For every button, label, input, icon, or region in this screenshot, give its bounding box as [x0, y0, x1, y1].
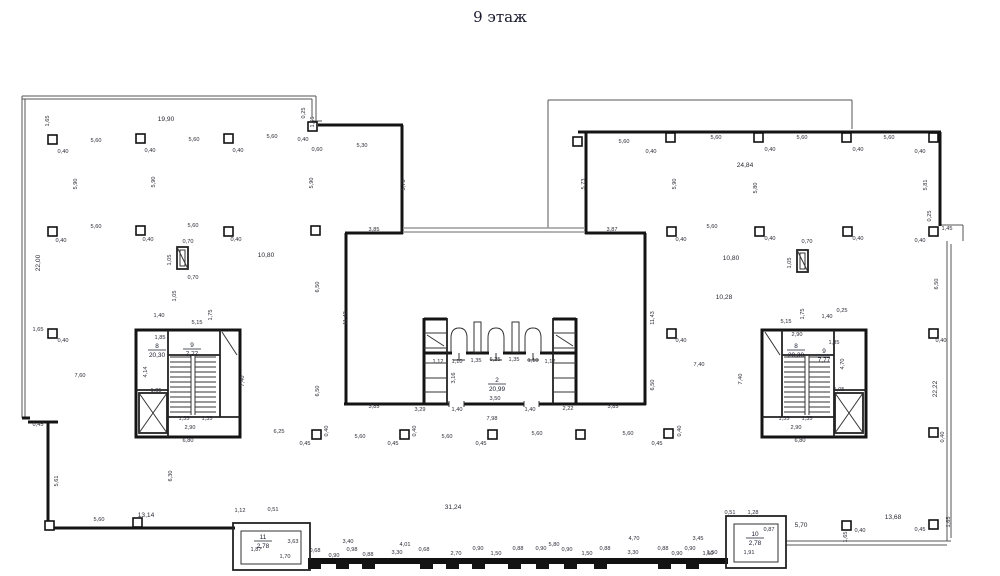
dimension-label: 0,40 [143, 237, 154, 243]
dimension-label: 6,50 [315, 386, 321, 397]
dimension-label: 2,70 [451, 551, 462, 557]
right-edge-wall [940, 225, 963, 541]
dimension-label: 0,98 [347, 547, 358, 553]
dimension-label: 1,65 [45, 116, 51, 127]
svg-text:9: 9 [822, 348, 826, 355]
dimension-label: 5,81 [923, 180, 929, 191]
dimension-label: 1,12 [545, 359, 556, 365]
dimension-label: 5,60 [188, 223, 199, 229]
dimension-label: 5,90 [73, 179, 79, 190]
dimension-label: 0,25 [301, 108, 307, 119]
svg-text:20,99: 20,99 [489, 386, 505, 393]
dimension-label: 1,65 [33, 327, 44, 333]
svg-text:7,77: 7,77 [818, 357, 831, 364]
room-label: 220,99 [488, 377, 506, 393]
dimension-label: 13,68 [885, 514, 902, 521]
dimension-label: 0,45 [476, 441, 487, 447]
dimension-label: 3,16 [451, 373, 457, 384]
dimension-label: 5,60 [94, 517, 105, 523]
dimension-label: 10,28 [716, 294, 733, 301]
dimension-label: 1,50 [491, 551, 502, 557]
dimension-label: 1,12 [433, 359, 444, 365]
dimension-label: 1,85 [155, 335, 166, 341]
dimension-label: 6,25 [274, 429, 285, 435]
dimension-label: 1,35 [471, 358, 482, 364]
shaft-divider [512, 322, 519, 352]
svg-text:7,77: 7,77 [186, 351, 199, 358]
dimension-label: 1,05 [834, 387, 845, 393]
dimension-label: 0,45 [652, 441, 663, 447]
dimension-label: 10,80 [258, 252, 275, 259]
dimension-label: 5,80 [549, 542, 560, 548]
dimension-label: 0,40 [853, 147, 864, 153]
svg-text:2: 2 [495, 377, 499, 384]
dimension-label: 6,50 [934, 279, 940, 290]
dimension-label: 0,40 [915, 149, 926, 155]
svg-text:20,30: 20,30 [149, 352, 165, 359]
right-wing-walls [578, 132, 941, 234]
dimension-label: 0,90 [473, 546, 484, 552]
right-wing-parapet [548, 100, 852, 228]
dimension-label: 0,25 [837, 308, 848, 314]
dimension-label: 0,68 [419, 547, 430, 553]
dimension-label: 13,14 [138, 512, 155, 519]
dimension-label: 1,12 [235, 508, 246, 514]
dimension-label: 0,40 [940, 432, 946, 443]
dimension-label: 1,85 [829, 340, 840, 346]
dimension-label: 0,40 [231, 237, 242, 243]
room-label: 97,77 [815, 348, 833, 364]
dimension-label: 5,60 [623, 431, 634, 437]
dimension-label: 1,65 [843, 532, 849, 543]
dimension-label: 1,35 [802, 416, 813, 422]
dimension-label: 6,25 [490, 357, 501, 363]
dimension-label: 0,40 [936, 338, 947, 344]
dimension-label: 3,30 [392, 550, 403, 556]
dimension-label: 2,90 [791, 425, 802, 431]
dimension-label: 1,05 [151, 388, 162, 394]
dimension-label: 1,45 [942, 226, 953, 232]
dimension-label: 7,40 [738, 374, 744, 385]
dimension-label: 0,45 [915, 527, 926, 533]
dimension-label: 5,15 [781, 319, 792, 325]
dimension-label: 0,40 [58, 338, 69, 344]
dimension-label: 0,90 [329, 553, 340, 559]
dimension-label: 1,46 [310, 117, 316, 128]
dimension-label: 3,50 [490, 396, 501, 402]
dimension-label: 0,70 [183, 239, 194, 245]
dimension-label: 4,70 [629, 536, 640, 542]
dimension-label: 0,25 [927, 211, 933, 222]
room-label: 102,78 [746, 531, 764, 547]
dimension-label: 1,05 [172, 291, 178, 302]
dimension-label: 22,22 [932, 380, 939, 397]
dimension-label: 24,84 [737, 162, 754, 169]
dimension-label: 0,40 [324, 426, 330, 437]
dimension-label: 0,45 [300, 441, 311, 447]
dimension-label: 10,80 [723, 255, 740, 262]
dimension-label: 0,40 [412, 426, 418, 437]
dimension-label: 0,40 [233, 148, 244, 154]
dimension-label: 0,68 [310, 548, 321, 554]
dimension-label: 5,90 [151, 177, 157, 188]
dimension-label: 4,14 [143, 367, 149, 378]
right-stairs [784, 355, 830, 415]
dimension-label: 0,60 [312, 147, 323, 153]
dimension-label: 0,40 [58, 149, 69, 155]
dimension-label: 2,90 [792, 332, 803, 338]
dimension-label: 5,90 [309, 178, 315, 189]
dimension-label: 5,30 [357, 143, 368, 149]
vent-shafts [177, 247, 808, 272]
dimension-label: 7,98 [487, 416, 498, 422]
dimension-label: 5,80 [753, 183, 759, 194]
dimension-label: 5,90 [672, 179, 678, 190]
svg-text:2,78: 2,78 [257, 543, 270, 550]
dimension-label: 0,40 [765, 147, 776, 153]
left-core-door [222, 332, 237, 355]
dimension-label: 1,75 [208, 310, 214, 321]
room-label: 112,78 [254, 534, 272, 550]
dimension-label: 0,40 [765, 236, 776, 242]
dimension-label: 5,60 [711, 135, 722, 141]
dimension-label: 7,40 [694, 362, 705, 368]
dimension-label: 1,40 [822, 314, 833, 320]
dimension-label: 3,87 [607, 227, 618, 233]
dimension-label: 1,05 [787, 258, 793, 269]
dimension-label: 1,35 [509, 357, 520, 363]
columns [45, 122, 938, 530]
svg-text:10: 10 [751, 531, 759, 538]
dimension-label: 0,90 [672, 551, 683, 557]
dimension-label: 2,90 [185, 425, 196, 431]
shaft-divider [474, 322, 481, 352]
dimension-label: 5,61 [54, 476, 60, 487]
dimension-label: 0,40 [853, 236, 864, 242]
room-labels: 220,99820,3097,77820,3097,77112,78102,78 [148, 342, 833, 550]
dimension-label: 1,75 [800, 309, 806, 320]
dimension-label: 0,90 [536, 546, 547, 552]
dimension-label: 3,63 [288, 539, 299, 545]
dimension-label: 5,60 [267, 134, 278, 140]
atrium-glazing [403, 228, 585, 232]
dimension-label: 5,60 [797, 135, 808, 141]
dimension-label: 6,80 [183, 438, 194, 444]
dimension-label: 0,40 [677, 426, 683, 437]
dimension-label: 6,80 [795, 438, 806, 444]
dimension-label: 0,40 [676, 237, 687, 243]
svg-text:11: 11 [260, 534, 267, 541]
dimension-label: 3,40 [343, 539, 354, 545]
dimension-label: 6,50 [315, 282, 321, 293]
room-11-outline [233, 523, 310, 570]
dimension-label: 3,45 [693, 536, 704, 542]
dimension-label: 0,70 [802, 239, 813, 245]
dimension-label: 3,30 [628, 550, 639, 556]
dimension-label: 1,05 [167, 255, 173, 266]
dimension-label: 1,10 [452, 359, 463, 365]
dimension-label: 11,43 [343, 311, 349, 325]
dimension-label: 11,43 [650, 311, 656, 325]
bottom-right-wall [786, 541, 951, 545]
dimension-label: 0,40 [676, 338, 687, 344]
dimension-label: 3,85 [608, 404, 619, 410]
dimension-label: 0,40 [915, 238, 926, 244]
dimension-label: 5,60 [91, 138, 102, 144]
dimension-label: 3,29 [415, 407, 426, 413]
dimension-label: 1,91 [744, 550, 755, 556]
dimension-label: 1,35 [202, 416, 213, 422]
floor-plan-drawing: 1,6519,905,605,605,600,400,400,400,251,4… [0, 0, 1000, 576]
svg-text:8: 8 [155, 343, 159, 350]
dimension-label: 6,50 [650, 380, 656, 391]
dimension-label: 1,40 [525, 407, 536, 413]
dimension-label: 31,24 [445, 504, 462, 511]
dimension-label: 5,70 [795, 522, 808, 529]
floor-plan-page: 9 этаж [0, 0, 1000, 576]
dimension-label: 1,50 [707, 550, 718, 556]
dimension-label: 5,60 [442, 434, 453, 440]
dimension-label: 6,30 [168, 471, 174, 482]
dimension-label: 5,73 [401, 180, 407, 191]
left-shaft-x [139, 393, 167, 433]
dimension-label: 19,90 [158, 116, 175, 123]
svg-text:9: 9 [190, 342, 194, 349]
dimension-label: 1,35 [779, 416, 790, 422]
dimension-label: 0,51 [268, 507, 279, 513]
room-label: 820,30 [148, 343, 166, 359]
dimension-label: 1,65 [946, 517, 952, 528]
dimension-label: 0,90 [562, 547, 573, 553]
dimension-label: 4,70 [840, 359, 846, 370]
dimension-label: 0,40 [145, 148, 156, 154]
dimension-label: 0,88 [600, 546, 611, 552]
dimension-label: 0,40 [298, 137, 309, 143]
dimension-label: 1,40 [154, 313, 165, 319]
dimension-label: 5,60 [707, 224, 718, 230]
dimension-label: 4,01 [400, 542, 411, 548]
dimension-label: 5,60 [91, 224, 102, 230]
dimension-label: 0,45 [33, 422, 44, 428]
dimension-label: 1,70 [280, 554, 291, 560]
dimension-label: 3,85 [369, 227, 380, 233]
dimension-label: 5,60 [884, 135, 895, 141]
dimension-label: 5,60 [532, 431, 543, 437]
svg-text:20,30: 20,30 [788, 352, 804, 359]
svg-text:8: 8 [794, 343, 798, 350]
dimension-label: 1,35 [179, 416, 190, 422]
left-stairs [170, 355, 216, 415]
dimension-label: 1,50 [582, 551, 593, 557]
right-core-door [765, 332, 780, 355]
dimension-label: 5,60 [619, 139, 630, 145]
dimension-label: 0,88 [658, 546, 669, 552]
dimension-label: 1,10 [528, 358, 539, 364]
dimension-label: 3,85 [369, 404, 380, 410]
dimension-label: 1,40 [452, 407, 463, 413]
dimension-label: 0,90 [685, 546, 696, 552]
right-shaft-x [835, 393, 863, 433]
dimension-label: 0,88 [363, 552, 374, 558]
dimension-label: 0,45 [388, 441, 399, 447]
dimension-label: 0,40 [646, 149, 657, 155]
dimension-label: 0,88 [513, 546, 524, 552]
thin-outlines [22, 96, 963, 545]
dimension-label: 22,00 [35, 254, 42, 271]
dimension-label: 2,22 [563, 406, 574, 412]
dimension-label: 7,60 [75, 373, 86, 379]
dimension-label: 0,40 [855, 528, 866, 534]
dimension-label: 7,40 [240, 376, 246, 387]
dimension-label: 0,51 [725, 510, 736, 516]
dimension-label: 5,60 [355, 434, 366, 440]
dimension-label: 5,60 [189, 137, 200, 143]
dimension-labels: 1,6519,905,605,605,600,400,400,400,251,4… [33, 108, 953, 560]
dimension-label: 0,40 [56, 238, 67, 244]
dimension-label: 0,70 [188, 275, 199, 281]
dimension-label: 5,73 [581, 179, 587, 190]
dimension-label: 5,15 [192, 320, 203, 326]
dimension-label: 1,28 [748, 510, 759, 516]
dimension-label: 0,87 [764, 527, 775, 533]
svg-text:2,78: 2,78 [749, 540, 762, 547]
room-label: 820,30 [787, 343, 805, 359]
